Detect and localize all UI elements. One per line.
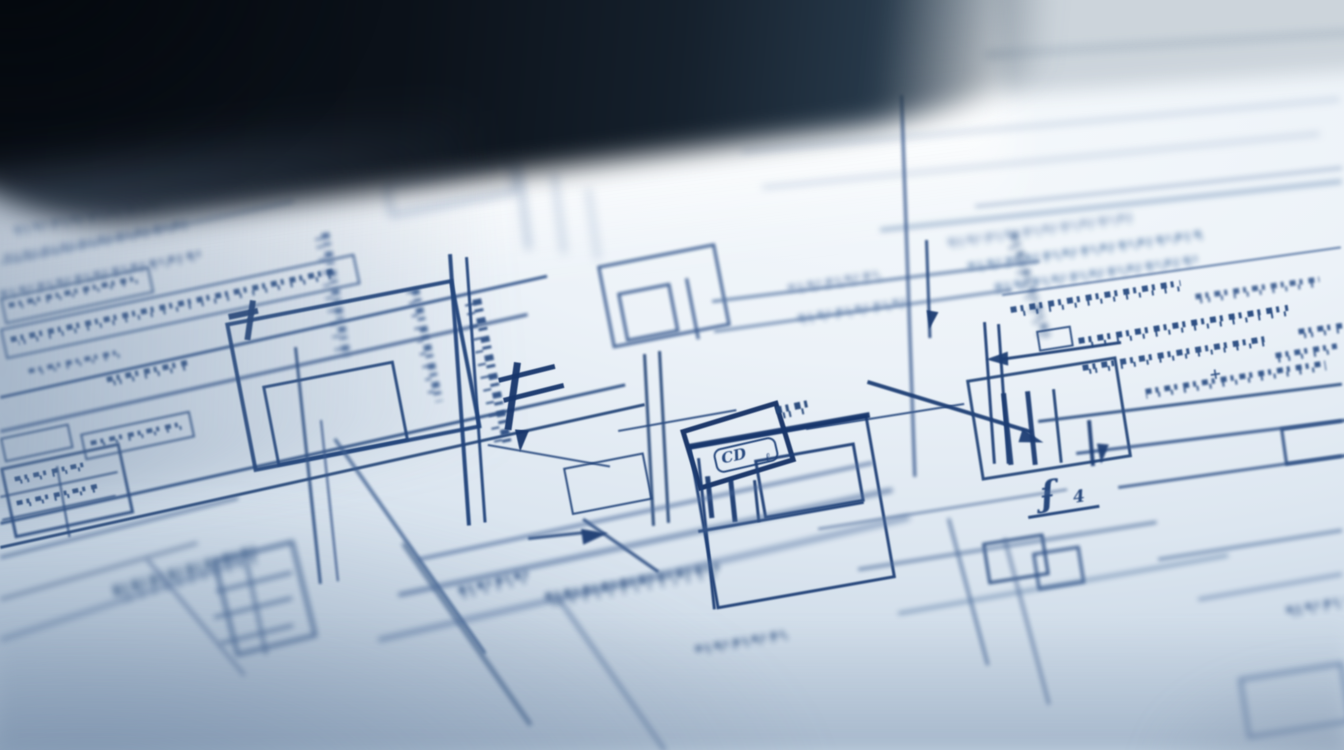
- bottom-right-shade: [1074, 620, 1344, 750]
- far-vertical: [586, 188, 600, 260]
- window-box-inner: [617, 283, 680, 342]
- far-vertical: [552, 172, 566, 254]
- right-text-row: [1145, 360, 1327, 400]
- symbol-underline: [1028, 505, 1100, 519]
- right-text-row: [1275, 342, 1338, 364]
- small-note: [775, 399, 810, 421]
- right-text-row: [1195, 276, 1320, 305]
- mid-line: [712, 260, 1040, 303]
- right-edge-box: [1280, 414, 1344, 466]
- arrowhead-down: [1095, 444, 1109, 465]
- blueprint-photo: CDℓʄ4+ Close-up photograph of an archite…: [0, 0, 1344, 750]
- br-note: [1286, 596, 1344, 620]
- right-long-vertical: [900, 95, 916, 477]
- four-mark: 4: [1072, 488, 1086, 506]
- hash-mark-tick: [498, 364, 555, 383]
- arrowhead-left: [986, 352, 1008, 367]
- br-line: [1198, 573, 1342, 601]
- br-line: [1158, 529, 1342, 561]
- arrowhead-down: [924, 310, 939, 330]
- right-text-row: [1298, 322, 1344, 340]
- center-vertical: [659, 351, 670, 523]
